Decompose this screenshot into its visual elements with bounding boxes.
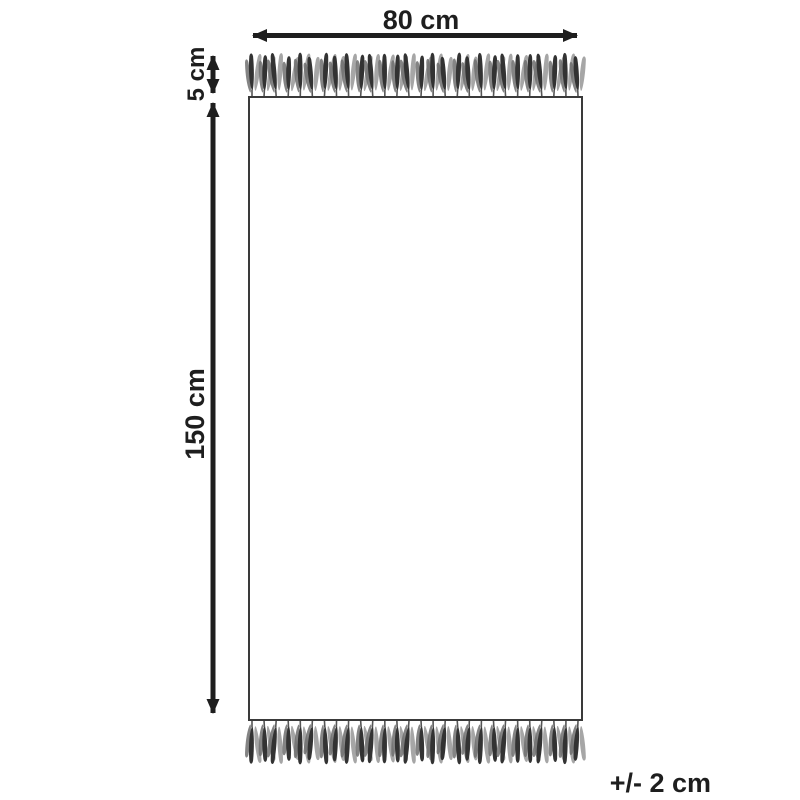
fringe-bottom — [244, 720, 588, 765]
rug-outline — [249, 97, 582, 720]
dimension-diagram: 80 cm 5 cm 150 cm +/- 2 cm — [0, 0, 800, 800]
tolerance-label: +/- 2 cm — [610, 768, 711, 798]
length-dimension-label: 150 cm — [180, 368, 210, 460]
diagram-canvas: 80 cm 5 cm 150 cm +/- 2 cm — [0, 0, 800, 800]
fringe-top — [244, 52, 588, 97]
fringe-dimension-label: 5 cm — [183, 47, 210, 102]
width-dimension-label: 80 cm — [383, 5, 460, 35]
